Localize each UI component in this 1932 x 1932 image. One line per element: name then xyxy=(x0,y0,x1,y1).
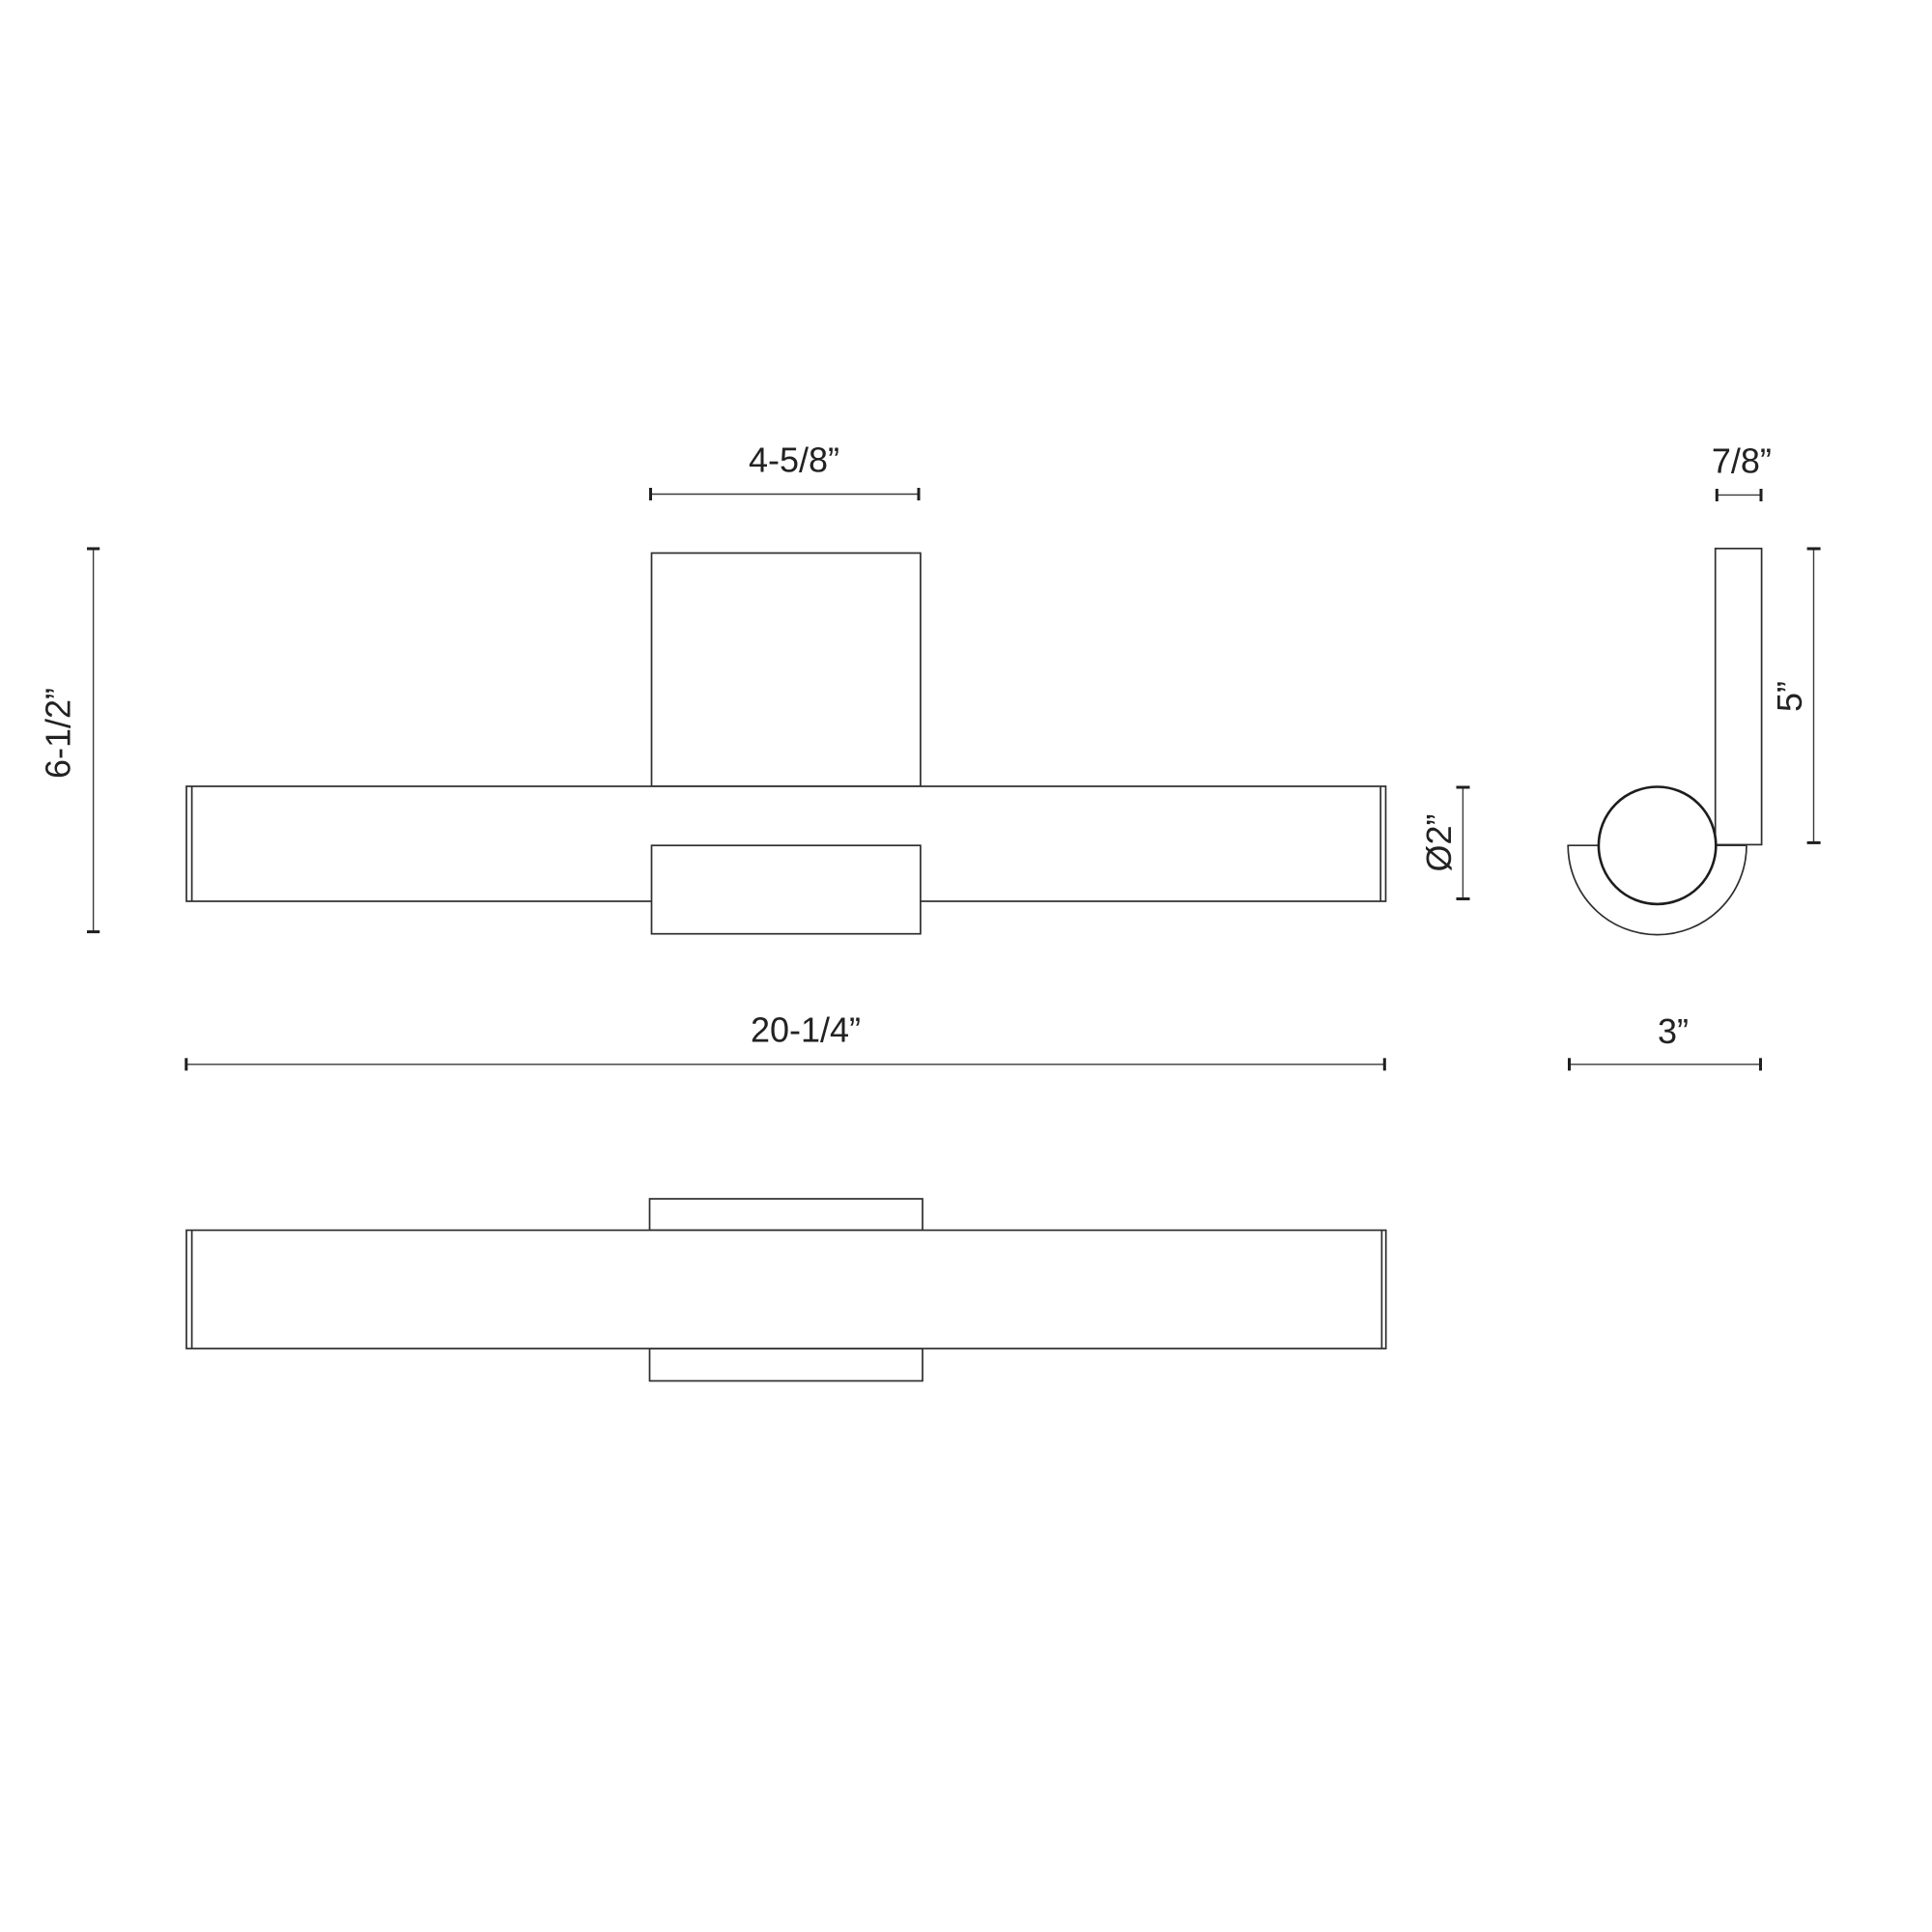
svg-text:3”: 3” xyxy=(1658,1011,1689,1051)
svg-text:7/8”: 7/8” xyxy=(1712,441,1772,481)
svg-text:6-1/2”: 6-1/2” xyxy=(39,688,78,779)
svg-text:20-1/4”: 20-1/4” xyxy=(751,1010,861,1050)
svg-text:4-5/8”: 4-5/8” xyxy=(749,440,839,480)
svg-text:Ø2”: Ø2” xyxy=(1419,813,1459,871)
svg-text:5”: 5” xyxy=(1770,681,1809,712)
